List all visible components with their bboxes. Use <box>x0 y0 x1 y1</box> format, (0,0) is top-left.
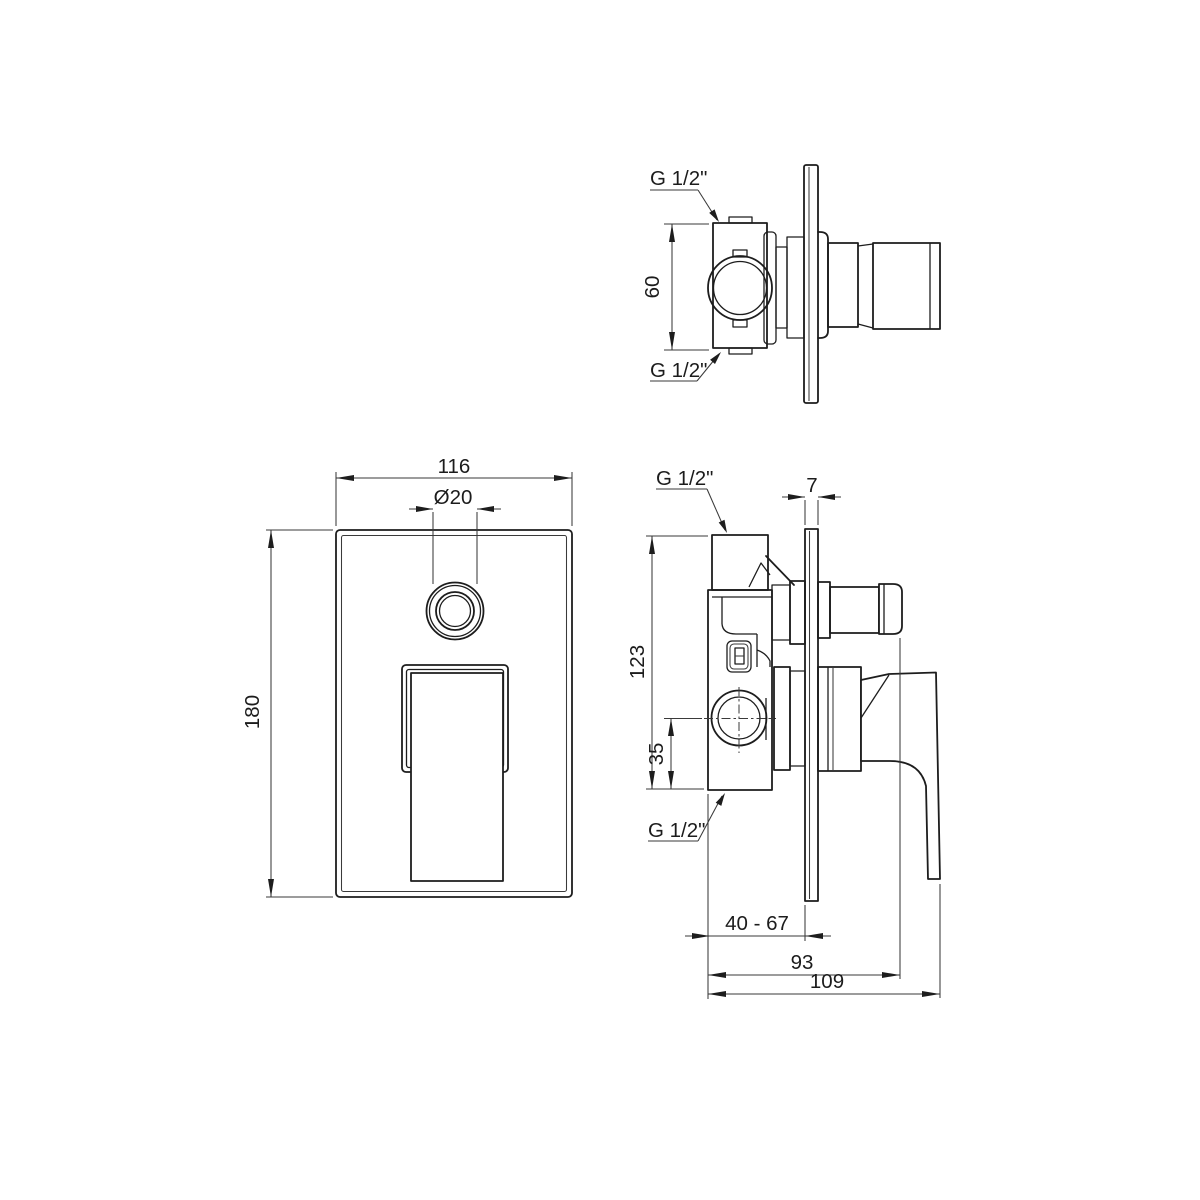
dim-180: 180 <box>241 530 333 897</box>
top-cover-plate <box>804 165 818 403</box>
top-valve-body <box>713 223 767 348</box>
dim-40-67: 40 - 67 <box>685 905 831 941</box>
top-cartridge-inner <box>714 262 767 315</box>
dim-7: 7 <box>782 474 841 525</box>
dim-40-67-label: 40 - 67 <box>725 912 789 935</box>
dim-180-label: 180 <box>241 695 264 729</box>
top-port-label-bottom: G 1/2" <box>650 352 721 382</box>
side-diverter-tube <box>772 585 790 640</box>
top-cartridge-outer <box>708 256 772 320</box>
side-body-interior <box>712 597 772 672</box>
side-view: G 1/2" G 1/2" 7 12 <box>626 467 940 999</box>
dim-109-label: 109 <box>810 970 844 993</box>
side-port-top <box>712 535 768 590</box>
side-diverter-knob <box>818 582 902 638</box>
front-view: 116 Ø20 180 <box>241 455 572 897</box>
front-diverter-button <box>427 583 484 640</box>
side-cartridge-flange <box>774 667 790 770</box>
side-port-bottom-text: G 1/2" <box>648 819 705 842</box>
top-port-top-text: G 1/2" <box>650 167 707 190</box>
dim-109: 109 <box>708 884 940 998</box>
side-port-label-top: G 1/2" <box>656 467 727 533</box>
side-port-top-text: G 1/2" <box>656 467 713 490</box>
side-diverter-flange <box>790 581 805 644</box>
dim-116-label: 116 <box>438 455 471 478</box>
technical-drawing-page: 60 G 1/2" G 1/2" <box>0 0 1200 1200</box>
mixer-valve-drawing: 60 G 1/2" G 1/2" <box>0 0 1200 1200</box>
front-handle <box>402 665 508 881</box>
dim-123-label: 123 <box>626 645 649 679</box>
side-cover-plate <box>805 529 818 901</box>
dim-35-label: 35 <box>645 743 668 766</box>
top-cartridge-tab-bottom <box>733 320 747 327</box>
top-mounting-hardware <box>764 232 804 344</box>
side-cartridge-sleeve <box>790 671 805 766</box>
dim-60: 60 <box>641 224 709 350</box>
side-handle <box>818 667 940 879</box>
dim-60-label: 60 <box>641 276 664 299</box>
dim-o20-label: Ø20 <box>434 486 473 509</box>
top-handle-sleeve <box>828 243 858 327</box>
top-port-label-top: G 1/2" <box>650 167 719 222</box>
side-handle-escutcheon <box>818 667 861 771</box>
dim-7-label: 7 <box>806 474 817 497</box>
side-port-label-bottom: G 1/2" <box>648 793 725 842</box>
front-handle-lever <box>411 673 503 881</box>
top-handle-flange <box>818 232 828 338</box>
top-view: 60 G 1/2" G 1/2" <box>641 165 940 403</box>
